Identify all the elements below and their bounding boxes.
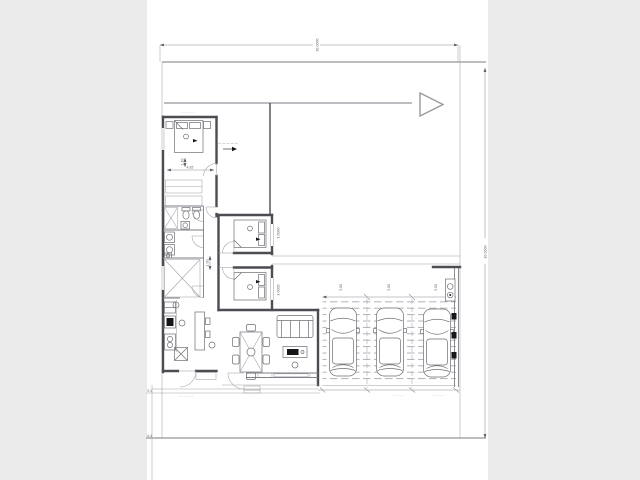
bay3-dim: 3.00 [434,284,438,291]
bedroom1-width-dim: 4.85 [186,166,193,170]
closet-depth-dim: 1.50 [181,158,185,165]
lot-width-dimension: 30.0000 [315,38,319,51]
bbq-counter [446,279,456,301]
bedroom3-dim: 3.0000 [277,284,281,295]
garage-note-left: · · · · · [393,394,402,398]
lot-depth-dimension: 30.0000 [483,245,487,258]
edge-label-bottom: 4.4 [147,434,152,438]
tv-label-text: · · · [292,369,297,373]
car-1 [327,308,360,376]
edge-label-top: 3.1 [147,389,152,393]
floor-plan-viewer: 30.0000 30.0000 [0,0,640,480]
garage-note-right: · · · · · · [432,394,443,398]
window [270,278,275,300]
window [270,224,275,246]
porch-note: · · · · · · · [179,395,192,399]
car-3 [421,309,454,377]
window [161,128,165,150]
hall-width-dim: 1.00 [206,259,210,266]
bedroom1-label: · · · · · · · [181,111,194,115]
bay2-dim: 3.00 [387,284,391,291]
drawing-page [147,0,488,480]
car-2 [374,308,407,376]
bedroom2-dim: 3.0000 [277,227,281,238]
bay1-dim: 3.00 [339,284,343,291]
leader-note-text: — — — — — [218,142,239,146]
floor-plan-canvas: 30.0000 30.0000 [0,0,640,480]
